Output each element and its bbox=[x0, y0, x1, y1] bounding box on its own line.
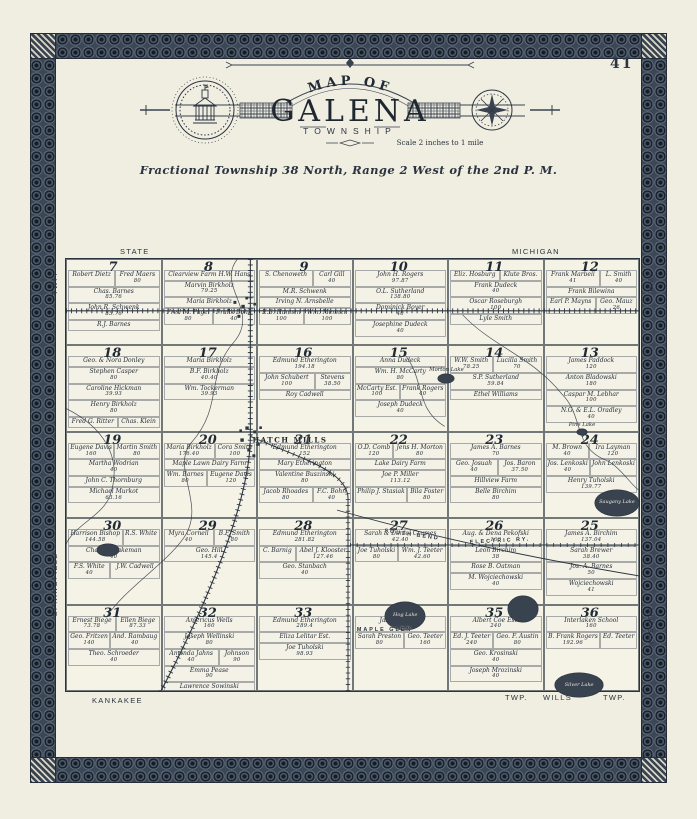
parcel-owner: Jos. Lenkoski40 bbox=[546, 459, 590, 476]
parcel-owner: Joseph Dudeck40 bbox=[355, 400, 447, 417]
parcel-acres: 138.80 bbox=[357, 295, 445, 301]
parcel-acres: 37.50 bbox=[500, 468, 539, 474]
parcel-acres: 80 bbox=[261, 496, 311, 502]
parcel-owner: Chas. Barnes85.76 bbox=[68, 287, 160, 304]
section-number: 7 bbox=[109, 260, 118, 275]
parcel-acres: 80 bbox=[70, 376, 158, 382]
parcel-acres: 70 bbox=[495, 365, 540, 371]
parcel-acres: 40 bbox=[315, 279, 348, 285]
parcel-owner: Joseph Wellinski80 bbox=[164, 632, 256, 649]
parcel-owner: Frank Bilewina bbox=[546, 287, 638, 298]
parcel-owner: Anton Bladowski180 bbox=[546, 373, 638, 390]
parcel-acres: 50 bbox=[548, 571, 636, 577]
scale-note: Scale 2 inches to 1 mile bbox=[397, 138, 484, 147]
parcel-acres: 160 bbox=[548, 624, 636, 630]
parcel-acres: 38 bbox=[452, 555, 540, 561]
parcel-acres: 79.25 bbox=[166, 289, 254, 295]
parcel-owner: Lyle Smith bbox=[450, 314, 542, 325]
parcel-owner: Irving N. Arnsbelle bbox=[259, 297, 351, 308]
parcel-owner: Jos. Baron37.50 bbox=[498, 459, 541, 476]
parcel-owner: C. Barnig bbox=[259, 546, 296, 563]
section-13: 13James Paddock120Anton Bladowski180Casp… bbox=[544, 345, 640, 431]
parcel-owner: Eliza Lelitar Est. bbox=[259, 632, 351, 643]
section-number: 32 bbox=[199, 606, 217, 621]
parcel-owner: Emma Pease90 bbox=[164, 666, 256, 683]
parcel-owner: N.G. & E.L. Oradley40 bbox=[546, 406, 638, 423]
parcel-owner: L. Smith40 bbox=[600, 270, 637, 287]
border-bottom bbox=[30, 757, 667, 783]
banner-ornament-top bbox=[226, 58, 474, 68]
parcel-acres: 127.46 bbox=[298, 555, 349, 561]
section-number: 19 bbox=[103, 433, 121, 448]
township-legal-line: Fractional Township 38 North, Range 2 We… bbox=[0, 163, 697, 177]
section-number: 29 bbox=[199, 519, 217, 534]
parcel-acres: 40 bbox=[70, 658, 158, 664]
edge-wills: WILLS bbox=[543, 693, 572, 702]
parcel-acres: 340 bbox=[357, 624, 445, 630]
parcel-acres: 160 bbox=[406, 641, 444, 647]
parcel-acres: 80 bbox=[261, 479, 349, 485]
section-7: 7Robert DietzFred Maers80Chas. Barnes85.… bbox=[66, 259, 162, 345]
section-29: 29Myra Cornell40B.F. Smith80Geo. Hill145… bbox=[162, 518, 258, 604]
parcel-acres: 90 bbox=[221, 658, 253, 664]
parcel-acres: 40 bbox=[452, 674, 540, 680]
parcel-acres: 40 bbox=[166, 658, 217, 664]
border-right bbox=[641, 33, 667, 783]
parcel-owner: Stevens38.50 bbox=[315, 373, 351, 390]
parcel-owner: F.S. White40 bbox=[68, 562, 110, 579]
parcel-owner: Belle Birchim80 bbox=[450, 487, 542, 504]
section-12: 12Frank Marbell41L. Smith40Frank Bilewin… bbox=[544, 259, 640, 345]
parcel-acres: 100 bbox=[261, 382, 313, 388]
section-22: 22O.D. Comb120Jens H. Morton80Lake Dairy… bbox=[353, 432, 449, 518]
parcel-owner: Johnson90 bbox=[219, 649, 255, 666]
parcel-owner: Geo. Mauz26 bbox=[596, 297, 637, 314]
parcel-owner: R.S. White bbox=[123, 529, 160, 546]
section-number: 12 bbox=[581, 260, 599, 275]
section-number: 11 bbox=[485, 260, 503, 275]
parcel-acres: 40 bbox=[357, 329, 445, 335]
parcel-acres: 176.40 bbox=[166, 452, 213, 458]
parcel-owner: Frank Rogers40 bbox=[400, 384, 446, 401]
section-31: 31Ernest Biege73.78Ellen Biege87.33Geo. … bbox=[66, 605, 162, 691]
parcel-acres: 40.40 bbox=[166, 376, 254, 382]
section-number: 34 bbox=[390, 606, 408, 621]
parcel-acres: 42.60 bbox=[400, 555, 444, 561]
parcel-acres: 59.84 bbox=[452, 382, 540, 388]
parcel-acres: 80 bbox=[395, 452, 444, 458]
section-number: 25 bbox=[581, 519, 599, 534]
edge-twp-right: TWP. bbox=[646, 272, 655, 295]
parcel-acres: 26 bbox=[598, 306, 635, 312]
section-15: 15Anna DudeckWm. H. McCarty80McCarty Est… bbox=[353, 345, 449, 431]
parcel-owner: Caspar M. Lebhar100 bbox=[546, 390, 638, 407]
parcel-acres: 80 bbox=[116, 452, 157, 458]
edge-twp-bottom-2: TWP. bbox=[603, 693, 626, 702]
parcel-acres: 40 bbox=[315, 496, 349, 502]
parcel-owner: Michael Murkot63.16 bbox=[68, 487, 160, 504]
parcel-owner: Mary Etherington bbox=[259, 459, 351, 470]
parcel-owner: And. Rambaug40 bbox=[110, 632, 159, 649]
parcel-acres: 80 bbox=[216, 538, 253, 544]
parcel-owner: John Schubert100 bbox=[259, 373, 315, 390]
parcel-owner: Chas. B. Bakeman40 bbox=[68, 546, 160, 563]
parcel-owner: Ethel Williams bbox=[450, 390, 542, 401]
section-number: 13 bbox=[581, 346, 599, 361]
border-corner-br bbox=[641, 757, 667, 783]
parcel-owner: Geo. Teeter160 bbox=[404, 632, 446, 649]
parcel-acres: 40 bbox=[602, 279, 635, 285]
section-number: 27 bbox=[390, 519, 408, 534]
section-number: 30 bbox=[103, 519, 121, 534]
parcel-acres: 40 bbox=[452, 582, 540, 588]
parcel-owner: Eugene Davis120 bbox=[207, 470, 255, 487]
parcel-acres: 160 bbox=[166, 624, 254, 630]
parcel-acres: 80 bbox=[495, 641, 539, 647]
parcel-owner: Philip J. Stasiak bbox=[355, 487, 408, 504]
title-banner: MAP OF GALENA TOWNSHIP Scale bbox=[140, 56, 560, 168]
parcel-owner: Stephen Casper80 bbox=[68, 367, 160, 384]
section-number: 31 bbox=[103, 606, 121, 621]
parcel-acres: 42.40 bbox=[357, 538, 445, 544]
section-23: 23James A. Barnes70Geo. Josuah40Jos. Bar… bbox=[448, 432, 544, 518]
parcel-acres: 40 bbox=[70, 468, 158, 474]
border-left bbox=[30, 33, 56, 783]
parcel-owner: Oscar Roseburgh100 bbox=[450, 297, 542, 314]
parcel-owner: M.R. Schwenk bbox=[259, 287, 351, 298]
parcel-acres: 39.93 bbox=[70, 392, 158, 398]
section-number: 10 bbox=[390, 260, 408, 275]
parcel-owner: John C. Thornburg bbox=[68, 476, 160, 487]
parcel-owner: Maria Birkholz bbox=[164, 297, 256, 308]
section-8: 8Clearview Farm H.W. HansMarvin Birkholz… bbox=[162, 259, 258, 345]
parcel-acres: 80 bbox=[409, 496, 444, 502]
parcel-acres: 80 bbox=[166, 479, 205, 485]
edge-springfield: SPRINGFIELD bbox=[50, 552, 59, 616]
parcel-acres: 160 bbox=[70, 452, 112, 458]
parcel-owner: Rose B. Oatman bbox=[450, 562, 542, 573]
border-corner-bl bbox=[30, 757, 56, 783]
parcel-owner: Henry Tuholski139.77 bbox=[546, 476, 638, 493]
parcel-acres: 40 bbox=[166, 538, 212, 544]
parcel-owner: Jos. A. Barnes50 bbox=[546, 562, 638, 579]
parcel-acres: 40 bbox=[357, 409, 445, 415]
parcel-acres: 144.58 bbox=[70, 538, 121, 544]
parcel-owner: Sarah Preston80 bbox=[355, 632, 405, 649]
parcel-acres: 85.76 bbox=[70, 295, 158, 301]
parcel-owner: Frank Dudeck40 bbox=[450, 281, 542, 298]
section-30: 30Harrison Bishop144.58R.S. WhiteChas. B… bbox=[66, 518, 162, 604]
parcel-acres: 80 bbox=[70, 409, 158, 415]
parcel-acres: 100 bbox=[217, 452, 253, 458]
parcel-owner: Amanda Jahns40 bbox=[164, 649, 219, 666]
parcel-acres: 137.04 bbox=[548, 538, 636, 544]
border-corner-tr bbox=[641, 33, 667, 59]
parcel-owner: Josephine Dudeck40 bbox=[355, 320, 447, 337]
parcel-acres: 40 bbox=[70, 555, 158, 561]
parcel-owner: J.W. Cadwell bbox=[110, 562, 159, 579]
parcel-acres: 139.77 bbox=[548, 485, 636, 491]
parcel-acres: 80 bbox=[117, 279, 157, 285]
parcel-acres: 80 bbox=[166, 641, 254, 647]
parcel-owner: John R. Schwenk85.76 bbox=[68, 303, 160, 320]
parcel-acres: 80 bbox=[357, 376, 445, 382]
section-27: 27Sarah & Daniel Crumes42.40Joe Tuholski… bbox=[353, 518, 449, 604]
parcel-owner: Wm. J. Teeter42.60 bbox=[398, 546, 446, 563]
courthouse-medallion bbox=[172, 77, 238, 143]
parcel-acres: 40 bbox=[215, 317, 253, 323]
parcel-acres: 40 bbox=[402, 392, 444, 398]
parcel-owner: M. Wojciechowski40 bbox=[450, 573, 542, 590]
section-number: 23 bbox=[485, 433, 503, 448]
parcel-owner: Fred G. Ritter bbox=[68, 417, 118, 428]
parcel-acres: 100 bbox=[261, 317, 302, 323]
section-20: 20Maria Birkholz176.40Cora Smith100Maple… bbox=[162, 432, 258, 518]
parcel-acres: 100 bbox=[548, 398, 636, 404]
parcel-acres: 192.96 bbox=[548, 641, 599, 647]
parcel-acres: 40 bbox=[548, 415, 636, 421]
parcel-acres: 97.87 bbox=[357, 279, 445, 285]
section-17: 17Maria BirkholzB.F. Birkholz40.40Wm. To… bbox=[162, 345, 258, 431]
parcel-acres: 152 bbox=[261, 452, 349, 458]
parcel-owner: Lawrence Sowinski40 bbox=[164, 682, 256, 691]
section-number: 24 bbox=[581, 433, 599, 448]
section-14: 14W.W. Smith78.25Lucilla Smith70S.P. Sut… bbox=[448, 345, 544, 431]
parcel-owner: Martha Wodrian40 bbox=[68, 459, 160, 476]
parcel-acres: 85.76 bbox=[70, 312, 158, 318]
parcel-acres: 41 bbox=[548, 588, 636, 594]
parcel-owner: Roy Cadwell bbox=[259, 390, 351, 401]
section-number: 9 bbox=[300, 260, 309, 275]
parcel-acres: 80 bbox=[357, 641, 403, 647]
parcel-owner: Geo. F. Austin80 bbox=[493, 632, 541, 649]
parcel-owner: O.D. Comb120 bbox=[355, 443, 394, 460]
edge-hudson: HUDSON bbox=[646, 608, 655, 648]
page-number: 41 bbox=[610, 56, 633, 72]
section-25: 25James A. Birchim137.04Sarah Brewer38.4… bbox=[544, 518, 640, 604]
parcel-owner: Chas. Klein bbox=[118, 417, 160, 428]
parcel-acres: 120 bbox=[357, 452, 392, 458]
parcel-acres: 289.4 bbox=[261, 624, 349, 630]
parcel-owner: Wm. Barnes80 bbox=[164, 470, 207, 487]
parcel-owner: Fred Maers80 bbox=[115, 270, 159, 287]
parcel-owner: S.P. Sutherland59.84 bbox=[450, 373, 542, 390]
parcel-owner: Henry Birkholz80 bbox=[68, 400, 160, 417]
parcel-acres: 87.33 bbox=[118, 624, 157, 630]
section-number: 28 bbox=[294, 519, 312, 534]
parcel-acres: 120 bbox=[548, 365, 636, 371]
section-9: 9S. ChenowethCarl Gill40M.R. SchwenkIrvi… bbox=[257, 259, 353, 345]
parcel-owner: Joe Tuholski80 bbox=[355, 546, 399, 563]
section-number: 21 bbox=[294, 433, 312, 448]
parcel-owner: Geo. Hill145.4 bbox=[164, 546, 256, 563]
parcel-owner: B.F. Birkholz40.40 bbox=[164, 367, 256, 384]
parcel-acres: 70 bbox=[452, 452, 540, 458]
section-number: 8 bbox=[204, 260, 213, 275]
parcel-acres: 80 bbox=[357, 555, 397, 561]
parcel-acres: 180 bbox=[548, 382, 636, 388]
parcel-acres: 90 bbox=[166, 674, 254, 680]
parcel-acres: 40 bbox=[261, 571, 349, 577]
section-number: 36 bbox=[581, 606, 599, 621]
border-corner-tl bbox=[30, 33, 56, 59]
section-16: 16Edmund Etherington194.18John Schubert1… bbox=[257, 345, 353, 431]
parcel-acres: 100 bbox=[452, 306, 540, 312]
parcel-owner: Joseph Mrozinski40 bbox=[450, 666, 542, 683]
parcel-acres: 40 bbox=[357, 312, 445, 318]
section-10: 10John H. Rogers97.87O.L. Sutherland138.… bbox=[353, 259, 449, 345]
section-19: 19Eugene Davis160Martin Smith80Martha Wo… bbox=[66, 432, 162, 518]
section-28: 28Edmund Etherington281.82C. BarnigAbel … bbox=[257, 518, 353, 604]
section-32: 32Americus Wells160Joseph Wellinski80Ama… bbox=[162, 605, 258, 691]
parcel-acres: 39.93 bbox=[166, 392, 254, 398]
parcel-acres: 100 bbox=[357, 392, 398, 398]
parcel-owner: Geo. Krosinski40 bbox=[450, 649, 542, 666]
section-number: 20 bbox=[199, 433, 217, 448]
parcel-acres: 281.82 bbox=[261, 538, 349, 544]
section-18: 18Geo. & Nora DonleyStephen Casper80Caro… bbox=[66, 345, 162, 431]
parcel-acres: 100 bbox=[306, 317, 349, 323]
parcel-owner: Cora Smith100 bbox=[215, 443, 255, 460]
parcel-owner: Wojciechowski41 bbox=[546, 579, 638, 596]
parcel-acres: 40 bbox=[452, 658, 540, 664]
parcel-acres: 40 bbox=[452, 468, 496, 474]
parcel-owner: Dominick Boyer40 bbox=[355, 303, 447, 320]
parcel-owner: E.B. Hannen100 bbox=[259, 308, 304, 325]
section-number: 22 bbox=[390, 433, 408, 448]
banner-title: GALENA bbox=[270, 94, 429, 129]
parcel-owner: Geo. Stanbach40 bbox=[259, 562, 351, 579]
parcel-owner: Geo. Fritzen140 bbox=[68, 632, 110, 649]
parcel-acres: 41 bbox=[548, 279, 599, 285]
section-number: 15 bbox=[390, 346, 408, 361]
parcel-owner: Ellen Biege87.33 bbox=[116, 616, 159, 633]
parcel-owner: B. Frank Rogers192.96 bbox=[546, 632, 601, 649]
parcel-owner: O.L. Sutherland138.80 bbox=[355, 287, 447, 304]
parcel-acres: 140 bbox=[70, 641, 108, 647]
parcel-owner: Geo. Josuah40 bbox=[450, 459, 498, 476]
banner-township: TOWNSHIP bbox=[303, 126, 397, 136]
section-number: 16 bbox=[294, 346, 312, 361]
parcel-acres: 80 bbox=[452, 496, 540, 502]
section-number: 33 bbox=[294, 606, 312, 621]
parcel-acres: 160 bbox=[452, 538, 540, 544]
parcel-acres: 63.16 bbox=[70, 496, 158, 502]
parcel-owner: Valentine Buszinski80 bbox=[259, 470, 351, 487]
section-35: 35Albert Coe Est.240Ed. J. Teeter240Geo.… bbox=[448, 605, 544, 691]
parcel-owner: Maple Lawn Dairy Farm bbox=[164, 459, 256, 470]
parcel-acres: 38.40 bbox=[548, 555, 636, 561]
parcel-owner: Ed. J. Teeter240 bbox=[450, 632, 493, 649]
parcel-owner: B.F. Smith80 bbox=[214, 529, 255, 546]
parcel-owner: Wm. Tockerman39.93 bbox=[164, 384, 256, 401]
edge-kankakee: KANKAKEE bbox=[92, 696, 143, 705]
parcel-owner: Marvin Birkholz79.25 bbox=[164, 281, 256, 298]
section-number: 18 bbox=[103, 346, 121, 361]
parcel-acres: 40 bbox=[70, 571, 108, 577]
edge-michigan: MICHIGAN bbox=[512, 247, 560, 256]
parcel-owner: Lake Dairy Farm bbox=[355, 459, 447, 470]
parcel-owner: Klute Bros. bbox=[500, 270, 542, 281]
parcel-owner: R.J. Barnes bbox=[68, 320, 160, 331]
parcel-acres: 78.25 bbox=[452, 365, 491, 371]
parcel-acres: 40 bbox=[452, 289, 540, 295]
parcel-acres: 240 bbox=[452, 641, 491, 647]
parcel-acres: 40 bbox=[548, 452, 587, 458]
plat-map-page: { "page": { "number": "41" }, "header": … bbox=[0, 0, 697, 819]
parcel-owner: Abel J. Klooster127.46 bbox=[296, 546, 351, 563]
section-grid: 7Robert DietzFred Maers80Chas. Barnes85.… bbox=[66, 259, 639, 691]
parcel-owner: Fred M. Pagel80 bbox=[164, 308, 213, 325]
section-number: 35 bbox=[485, 606, 503, 621]
parcel-acres: 40 bbox=[548, 468, 588, 474]
parcel-acres: 113.12 bbox=[357, 479, 445, 485]
section-11: 11Eliz. HosburgKlute Bros.Frank Dudeck40… bbox=[448, 259, 544, 345]
parcel-acres: 120 bbox=[209, 479, 253, 485]
parcel-acres: 120 bbox=[591, 452, 635, 458]
parcel-acres: 40 bbox=[112, 641, 157, 647]
edge-state: STATE bbox=[120, 247, 150, 256]
parcel-owner: Bila Foster80 bbox=[407, 487, 446, 504]
parcel-acres: 240 bbox=[452, 624, 540, 630]
parcel-owner: Caroline Hickman39.93 bbox=[68, 384, 160, 401]
section-number: 26 bbox=[485, 519, 503, 534]
parcel-owner: Joe P. Miller113.12 bbox=[355, 470, 447, 487]
edge-twp-bottom-1: TWP. bbox=[505, 693, 528, 702]
parcel-acres: 145.4 bbox=[166, 555, 254, 561]
parcel-owner: Hillview Farm bbox=[450, 476, 542, 487]
section-33: 33Edmund Etherington289.4Eliza Lelitar E… bbox=[257, 605, 353, 691]
parcel-owner: Wm. H. McCarty80 bbox=[355, 367, 447, 384]
compass-medallion bbox=[472, 90, 512, 130]
section-21: 21Edmund Etherington152Mary EtheringtonV… bbox=[257, 432, 353, 518]
section-36: 36Interlaken School160B. Frank Rogers192… bbox=[544, 605, 640, 691]
edge-twp-left: TWP. bbox=[50, 272, 59, 295]
parcel-owner: Earl P. Mayns bbox=[546, 297, 596, 314]
parcel-owner: John Lenkoski bbox=[590, 459, 637, 476]
section-26: 26Aug. & Dena Pekofski160Leon Birchim38R… bbox=[448, 518, 544, 604]
parcel-owner: Frank Bohn40 bbox=[213, 308, 255, 325]
section-number: 17 bbox=[199, 346, 217, 361]
parcel-owner: Wm. Mennen100 bbox=[304, 308, 351, 325]
township-map: 7Robert DietzFred Maers80Chas. Barnes85.… bbox=[65, 258, 640, 692]
parcel-owner: Sarah Brewer38.40 bbox=[546, 546, 638, 563]
parcel-acres: 194.18 bbox=[261, 365, 349, 371]
parcel-acres: 38.50 bbox=[317, 382, 349, 388]
parcel-owner: Ed. Teeter bbox=[600, 632, 637, 649]
parcel-acres: 98.93 bbox=[261, 652, 349, 658]
parcel-owner: Carl Gill40 bbox=[313, 270, 350, 287]
section-24: 24M. Brown40Ira Layman120Jos. Lenkoski40… bbox=[544, 432, 640, 518]
section-34: 34Jas. E. Bowell340Sarah Preston80Geo. T… bbox=[353, 605, 449, 691]
parcel-owner: McCarty Est.100 bbox=[355, 384, 400, 401]
parcel-acres: 73.78 bbox=[70, 624, 114, 630]
parcel-owner: F.C. Bohn40 bbox=[313, 487, 351, 504]
section-number: 14 bbox=[485, 346, 503, 361]
parcel-owner: Theo. Schroeder40 bbox=[68, 649, 160, 666]
parcel-owner: Jacob Rhoades80 bbox=[259, 487, 313, 504]
parcel-owner: Joe Tuholski98.93 bbox=[259, 643, 351, 660]
parcel-acres: 80 bbox=[166, 317, 211, 323]
parcel-owner: Leon Birchim38 bbox=[450, 546, 542, 563]
